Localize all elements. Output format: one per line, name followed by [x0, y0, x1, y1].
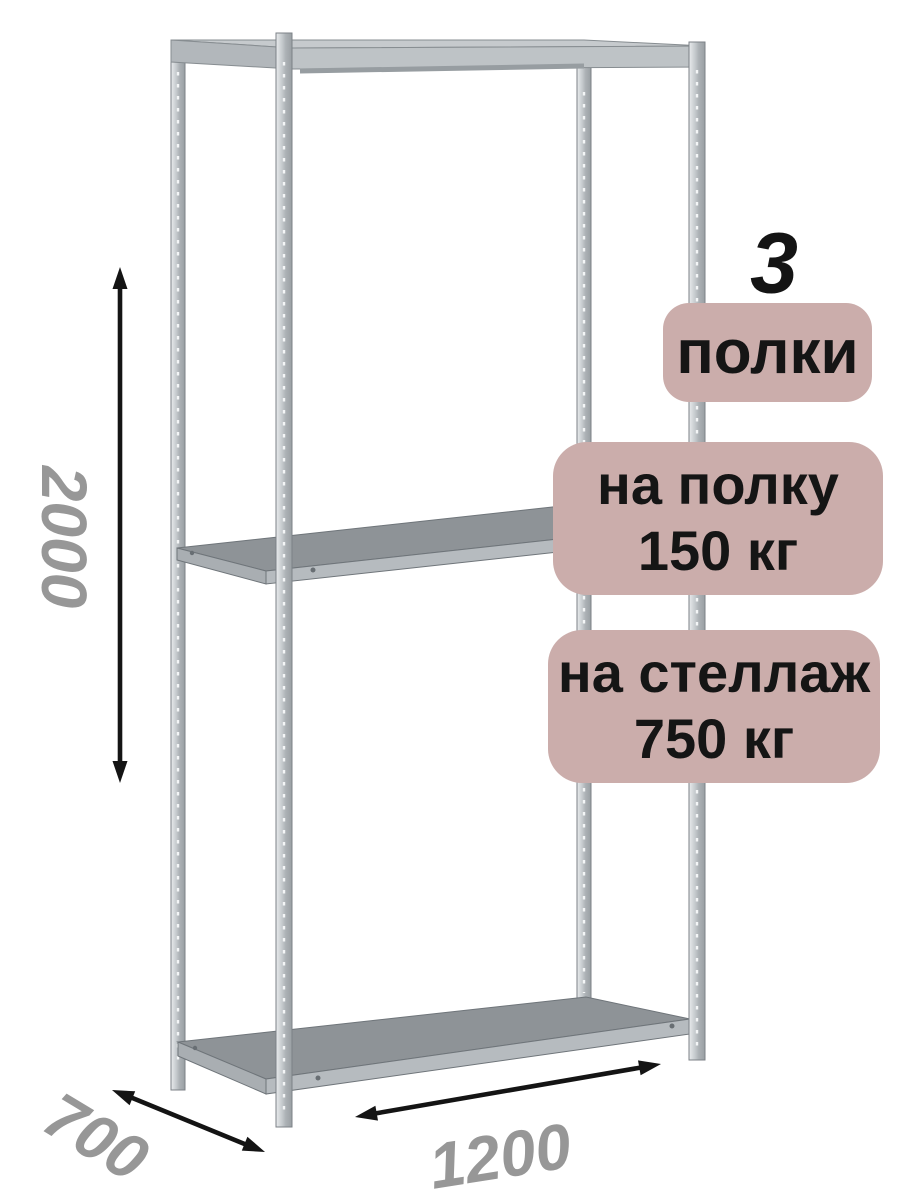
- shelving-rack-illustration: [0, 0, 900, 1200]
- per-shelf-load-line2: 150 кг: [553, 518, 883, 584]
- shelf-count-badge-label: полки: [676, 318, 858, 387]
- shelf-count-badge: полки: [663, 303, 872, 402]
- rack-shelf-bottom: [178, 997, 690, 1094]
- rack-shelf-top: [171, 40, 705, 71]
- rack-upright-front-left: [276, 33, 292, 1127]
- per-rack-load-badge: на стеллаж 750 кг: [548, 630, 880, 783]
- per-rack-load-line2: 750 кг: [548, 706, 880, 772]
- height-arrow: [113, 267, 128, 783]
- height-dimension-label: 2000: [27, 466, 101, 608]
- shelf-count-number: 3: [750, 215, 798, 314]
- per-shelf-load-badge: на полку 150 кг: [553, 442, 883, 595]
- per-shelf-load-line1: на полку: [553, 452, 883, 518]
- rack-upright-back-left: [171, 40, 185, 1090]
- per-rack-load-line1: на стеллаж: [548, 640, 880, 706]
